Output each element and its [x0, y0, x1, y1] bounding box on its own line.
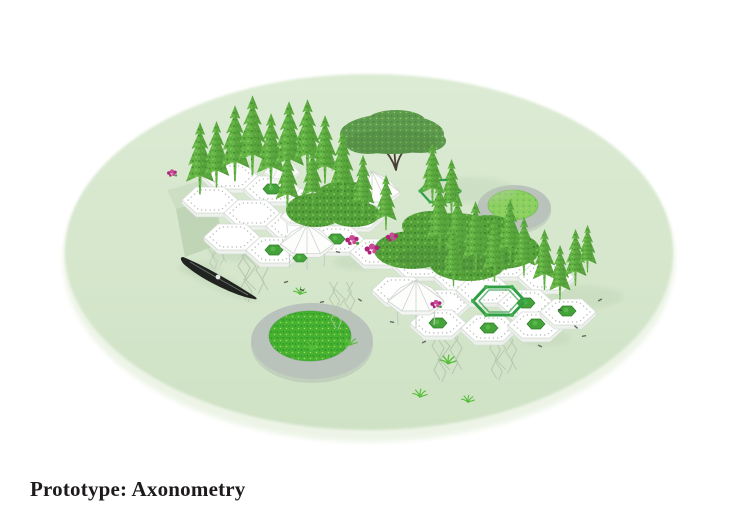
grass-pad-left-lawn: [269, 311, 351, 361]
hex-planter: [527, 319, 545, 329]
hex-planter: [480, 323, 498, 333]
hex-planter: [558, 306, 576, 316]
boat-detail: [216, 275, 221, 280]
hex-planter: [429, 318, 447, 328]
presentation-page: Prototype: Axonometry: [0, 0, 730, 516]
figure-caption: Prototype: Axonometry: [30, 477, 246, 502]
hex-planter: [293, 254, 307, 262]
axonometric-rendering: [0, 0, 730, 516]
